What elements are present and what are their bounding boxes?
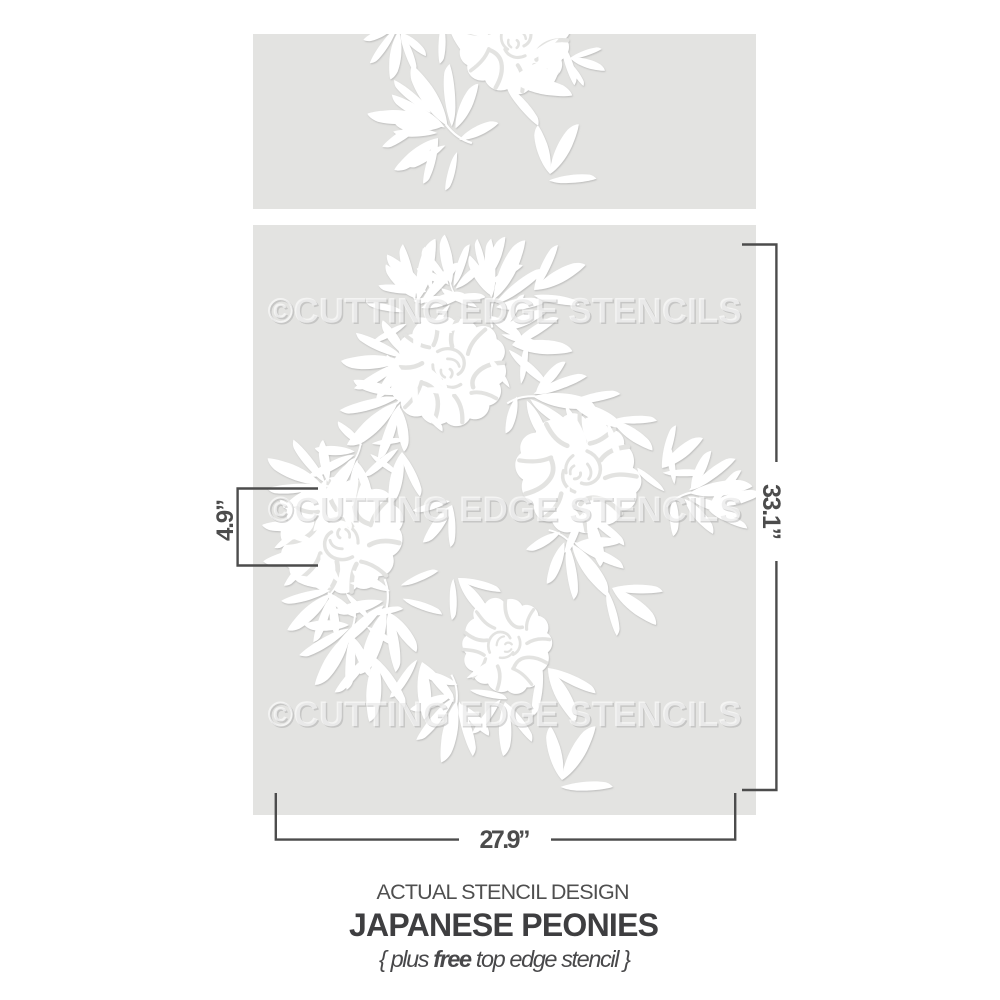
svg-text:4.9”: 4.9”	[212, 499, 239, 541]
svg-text:ACTUAL STENCIL DESIGN: ACTUAL STENCIL DESIGN	[377, 880, 632, 904]
svg-text:©CUTTING EDGE STENCILS: ©CUTTING EDGE STENCILS	[268, 695, 742, 734]
svg-text:27.9”: 27.9”	[480, 826, 531, 854]
svg-text:JAPANESE PEONIES: JAPANESE PEONIES	[349, 907, 659, 943]
svg-text:©CUTTING EDGE STENCILS: ©CUTTING EDGE STENCILS	[268, 292, 742, 331]
svg-text:33.1”: 33.1”	[757, 484, 785, 540]
svg-text:©CUTTING EDGE STENCILS: ©CUTTING EDGE STENCILS	[268, 490, 742, 529]
svg-text:{ plus free top edge stencil }: { plus free top edge stencil }	[379, 946, 631, 972]
